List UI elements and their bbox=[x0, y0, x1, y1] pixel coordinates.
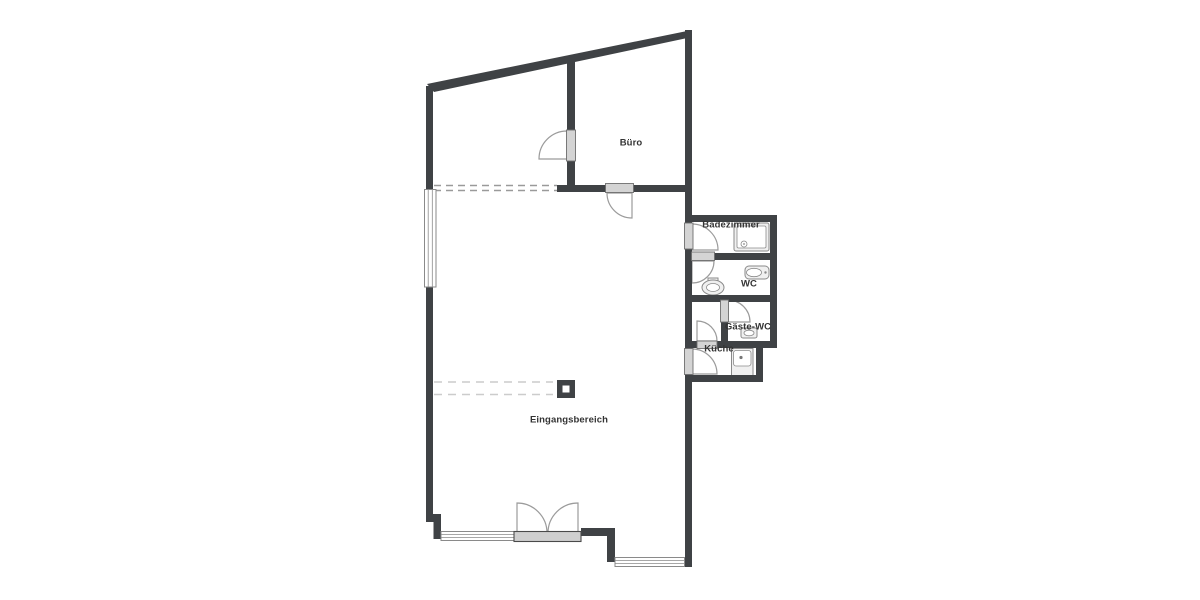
door-arc-hall bbox=[697, 321, 717, 341]
door-arc-gaeste-wc bbox=[728, 300, 750, 322]
wc-bottom-wall bbox=[685, 295, 777, 302]
door-panel-gaeste-wc bbox=[721, 300, 729, 322]
kitchen-sink-fixture bbox=[732, 349, 754, 378]
dashed-opening-upper bbox=[434, 186, 557, 191]
floorplan-drawing bbox=[0, 0, 1200, 600]
left-wall bbox=[426, 86, 433, 517]
room-label-badezimmer: Badezimmer bbox=[702, 220, 760, 231]
room-label-eingangsbereich: Eingangsbereich bbox=[530, 415, 608, 426]
column bbox=[557, 380, 575, 398]
walls bbox=[426, 30, 777, 567]
room-label-kueche: Küche bbox=[704, 344, 734, 355]
window-bottom-right bbox=[615, 558, 685, 567]
entrance-door-arc-right bbox=[548, 503, 578, 533]
toilet-fixture bbox=[702, 278, 724, 295]
door-panel-wc bbox=[692, 252, 715, 261]
entrance-door-arc-left bbox=[517, 503, 547, 533]
dashed-opening-lower bbox=[434, 382, 553, 395]
door-arc-anteroom bbox=[539, 131, 567, 159]
washbasin-fixture bbox=[745, 266, 769, 279]
entrance-door-threshold bbox=[514, 532, 581, 542]
window-bottom-left bbox=[441, 532, 514, 541]
buero-bottom-wall bbox=[557, 185, 606, 192]
kueche-bottom-wall bbox=[685, 375, 763, 382]
sloped-top-wall bbox=[427, 30, 692, 92]
floorplan-canvas: Büro Badezimmer WC Gäste-WC Küche Eingan… bbox=[0, 0, 1200, 600]
door-arc-buero bbox=[607, 193, 632, 218]
door-panel-kueche bbox=[685, 349, 694, 375]
door-panel-badezimmer bbox=[685, 223, 694, 249]
room-label-wc: WC bbox=[741, 279, 757, 290]
badezimmer-wc-wall bbox=[714, 253, 777, 260]
window-left bbox=[425, 190, 437, 288]
right-wall bbox=[685, 30, 692, 223]
door-panel-buero bbox=[606, 184, 634, 193]
room-label-buero: Büro bbox=[620, 138, 643, 149]
buero-left-wall bbox=[567, 57, 575, 130]
door-panel-anteroom bbox=[567, 130, 576, 161]
room-label-gaeste-wc: Gäste-WC bbox=[725, 322, 771, 333]
